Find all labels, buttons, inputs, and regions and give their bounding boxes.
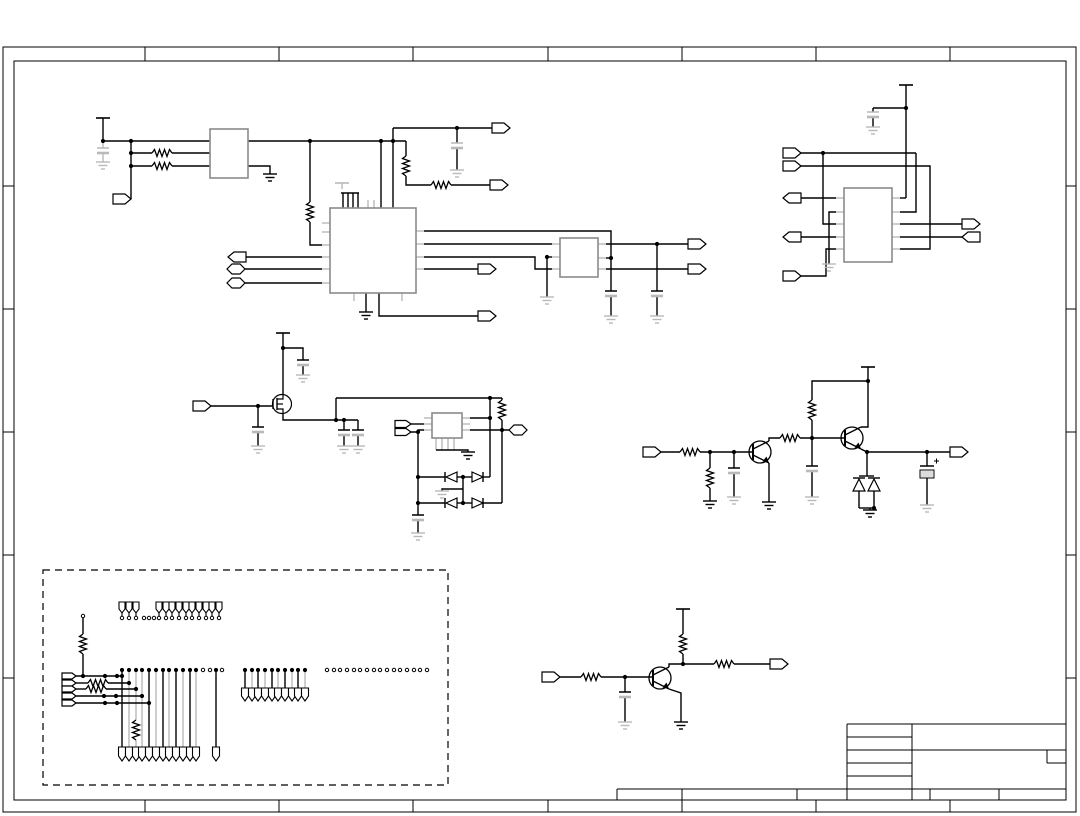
port-connector <box>962 219 980 229</box>
pin-connector <box>203 602 209 613</box>
pin-connector <box>242 688 249 701</box>
junction-dot <box>115 701 119 705</box>
pin-dot <box>220 668 223 671</box>
pin-dot <box>325 668 328 671</box>
junction-dot <box>416 475 420 479</box>
pin-connector <box>126 602 132 613</box>
pin-dot <box>190 616 193 619</box>
pin-connector <box>119 747 126 761</box>
pin-connector <box>163 602 169 613</box>
pin-dot <box>412 668 415 671</box>
pin-connector <box>166 747 173 761</box>
pin-connector <box>183 602 189 613</box>
circuit-components <box>62 85 980 761</box>
port-connector <box>478 264 496 274</box>
resistor-symbol <box>780 435 800 442</box>
pin-connector <box>282 688 289 701</box>
pin-dot <box>152 616 155 619</box>
junction-dot <box>140 694 144 698</box>
junction-dot <box>391 139 395 143</box>
pin-connector <box>275 688 282 701</box>
junction-dot <box>810 436 814 440</box>
diode-symbol <box>446 472 457 482</box>
schematic-sheet <box>0 0 1080 816</box>
port-connector <box>783 232 801 242</box>
pin-connector <box>126 747 133 761</box>
wire <box>861 449 950 452</box>
pin-dot <box>372 668 375 671</box>
resistor-symbol <box>86 686 106 693</box>
pin-dot <box>418 668 421 671</box>
ic-component-box <box>210 129 248 178</box>
junction-dot <box>167 668 171 672</box>
bidirectional-port-connector <box>227 278 245 288</box>
title-block <box>617 724 1066 800</box>
wire <box>900 153 916 212</box>
wire <box>769 438 780 441</box>
pin-dot <box>170 616 173 619</box>
junction-dot <box>866 379 870 383</box>
resistor-symbol <box>307 202 314 222</box>
pin-dot <box>338 668 341 671</box>
pin-connector <box>139 747 146 761</box>
junction-dot <box>270 668 274 672</box>
pin-dot <box>378 668 381 671</box>
wire <box>283 413 358 420</box>
junction-dot <box>296 668 300 672</box>
port-connector <box>62 700 76 706</box>
diode-symbol <box>472 472 483 482</box>
junction-dot <box>488 416 492 420</box>
port-connector <box>62 680 76 686</box>
pin-connector <box>173 747 180 761</box>
pin-connector <box>209 602 215 613</box>
junction-dot <box>461 501 465 505</box>
junction-dot <box>303 668 307 672</box>
junction-dot <box>161 668 165 672</box>
junction-dot <box>134 668 138 672</box>
ic-component-box <box>330 208 416 293</box>
resistor-symbol <box>809 400 816 420</box>
junction-dot <box>81 674 85 678</box>
bidirectional-port-connector <box>509 425 527 435</box>
port-connector <box>193 401 211 411</box>
pin-dot <box>177 616 180 619</box>
pin-dot <box>405 668 408 671</box>
junction-dot <box>416 501 420 505</box>
resistor-symbol <box>152 150 172 157</box>
circuit-wiring <box>76 91 962 747</box>
pin-dot <box>197 616 200 619</box>
junction-dot <box>500 428 504 432</box>
junction-dot <box>865 450 869 454</box>
pin-connector <box>216 602 222 613</box>
pin-dot <box>208 668 211 671</box>
junction-dot <box>283 668 287 672</box>
schematic-page <box>0 0 1080 816</box>
pin-dot <box>425 668 428 671</box>
port-connector <box>62 686 76 692</box>
junction-dot <box>140 668 144 672</box>
wire <box>248 166 270 174</box>
wire <box>669 664 683 667</box>
pin-connector <box>169 602 175 613</box>
junction-dot <box>127 681 131 685</box>
junction-dot <box>281 346 285 350</box>
wire <box>861 381 868 427</box>
port-connector <box>962 232 980 242</box>
port-connector <box>783 161 801 171</box>
pin-dot <box>392 668 395 671</box>
port-connector <box>228 252 246 262</box>
diode-symbol <box>868 479 880 491</box>
port-connector <box>62 673 76 679</box>
pin-connector <box>176 602 182 613</box>
frame-outer-border <box>3 47 1076 812</box>
pin-connector <box>213 747 220 761</box>
pin-connector <box>262 688 269 701</box>
junction-dot <box>194 668 198 672</box>
port-connector <box>783 193 801 203</box>
junction-dot <box>256 404 260 408</box>
pin-dot <box>120 616 123 619</box>
resistor-symbol <box>80 634 87 654</box>
port-connector <box>688 239 706 249</box>
junction-dot <box>214 668 218 672</box>
wire <box>829 212 836 264</box>
junction-dot <box>120 668 124 672</box>
junction-dot <box>732 450 736 454</box>
pin-connector <box>146 747 153 761</box>
pin-dot <box>365 668 368 671</box>
diode-symbol <box>853 479 865 491</box>
pin-dot <box>352 668 355 671</box>
junction-dot <box>623 675 627 679</box>
junction-dot <box>188 668 192 672</box>
ic-component-box <box>432 413 462 438</box>
junction-dot <box>129 164 133 168</box>
resistor-symbol <box>431 182 451 189</box>
ic-component-box <box>560 238 598 277</box>
sheet-frame <box>3 47 1076 812</box>
junction-dot <box>243 668 247 672</box>
junction-dot <box>120 674 124 678</box>
junction-dot <box>127 668 131 672</box>
junction-dot <box>129 151 133 155</box>
junction-dot <box>308 139 312 143</box>
junction-dot <box>147 668 151 672</box>
junction-dot <box>103 674 107 678</box>
wire <box>669 689 681 722</box>
pin-connector <box>133 602 139 613</box>
port-connector <box>688 264 706 274</box>
pin-dot <box>345 668 348 671</box>
junction-dot <box>342 418 346 422</box>
junction-dot <box>263 668 267 672</box>
pin-dot <box>385 668 388 671</box>
pin-connector <box>295 688 302 701</box>
pin-dot <box>127 616 130 619</box>
port-connector <box>478 311 496 321</box>
port-connector <box>62 693 76 699</box>
wire <box>812 381 868 400</box>
wire <box>406 176 431 185</box>
wire <box>379 293 478 316</box>
bidirectional-port-connector <box>227 264 245 274</box>
pin-dot <box>184 616 187 619</box>
resistor-symbol <box>581 674 601 681</box>
frame-inner-border <box>14 61 1066 800</box>
port-connector <box>783 148 801 158</box>
junction-dot <box>655 242 659 246</box>
ic-component-box <box>844 188 892 262</box>
pin-dot <box>147 616 150 619</box>
junction-dot <box>821 151 825 155</box>
resistor-symbol <box>707 468 714 488</box>
pin-connector <box>255 688 262 701</box>
diode-symbol <box>446 498 457 508</box>
resistor-symbol <box>133 720 140 740</box>
junction-dot <box>455 126 459 130</box>
junction-dot <box>708 450 712 454</box>
pin-dot <box>332 668 335 671</box>
junction-dot <box>101 139 105 143</box>
junction-dot <box>115 674 119 678</box>
junction-dot <box>609 256 613 260</box>
pin-connector <box>196 602 202 613</box>
junction-dot <box>154 668 158 672</box>
pin-dot <box>217 616 220 619</box>
pin-connector <box>156 602 162 613</box>
resistor-symbol <box>714 661 734 668</box>
pin-connector <box>189 602 195 613</box>
pin-dot <box>210 616 213 619</box>
port-connector <box>395 421 411 428</box>
port-connector <box>643 447 661 457</box>
wire <box>310 222 322 245</box>
junction-dot <box>250 668 254 672</box>
junction-dot <box>334 418 338 422</box>
pin-connector <box>119 602 125 613</box>
pin-dot <box>134 616 137 619</box>
pin-dot <box>157 616 160 619</box>
junction-dot <box>276 668 280 672</box>
junction-dot <box>416 430 420 434</box>
port-connector <box>770 659 788 669</box>
junction-dot <box>872 506 876 510</box>
junction-dot <box>114 694 118 698</box>
resistor-symbol <box>403 156 410 176</box>
pin-dot <box>142 616 145 619</box>
junction-dot <box>147 701 151 705</box>
pin-dot <box>164 616 167 619</box>
junction-dot <box>461 475 465 479</box>
resistor-symbol <box>680 634 687 654</box>
resistor-symbol <box>152 163 172 170</box>
junction-dot <box>102 694 106 698</box>
wire <box>801 249 836 276</box>
junction-dot <box>379 139 383 143</box>
pin-connector <box>153 747 160 761</box>
junction-dot <box>681 662 685 666</box>
wire <box>283 348 303 360</box>
junction-dot <box>103 701 107 705</box>
port-connector <box>490 180 508 190</box>
junction-dot <box>129 139 133 143</box>
port-connector <box>950 447 968 457</box>
port-connector <box>783 271 801 281</box>
port-connector <box>542 672 560 682</box>
port-connector <box>113 194 131 204</box>
port-connector <box>395 429 411 436</box>
junction-dot <box>181 668 185 672</box>
junction-dot <box>174 668 178 672</box>
pin-connector <box>302 688 309 701</box>
junction-dot <box>290 668 294 672</box>
junction-dot <box>256 668 260 672</box>
port-connector <box>492 123 510 133</box>
junction-dot <box>488 396 492 400</box>
resistor-symbol <box>680 449 700 456</box>
junction-dot <box>545 255 549 259</box>
junction-dot <box>134 687 138 691</box>
pin-dot <box>204 616 207 619</box>
pin-dot <box>358 668 361 671</box>
resistor-symbol <box>499 400 506 420</box>
pin-dot <box>398 668 401 671</box>
pin-dot <box>81 614 84 617</box>
pin-connector <box>180 747 187 761</box>
diode-symbol <box>472 498 483 508</box>
pin-connector <box>193 747 200 761</box>
junction-dot <box>904 106 908 110</box>
pin-dot <box>201 668 204 671</box>
junction-dot <box>925 450 929 454</box>
